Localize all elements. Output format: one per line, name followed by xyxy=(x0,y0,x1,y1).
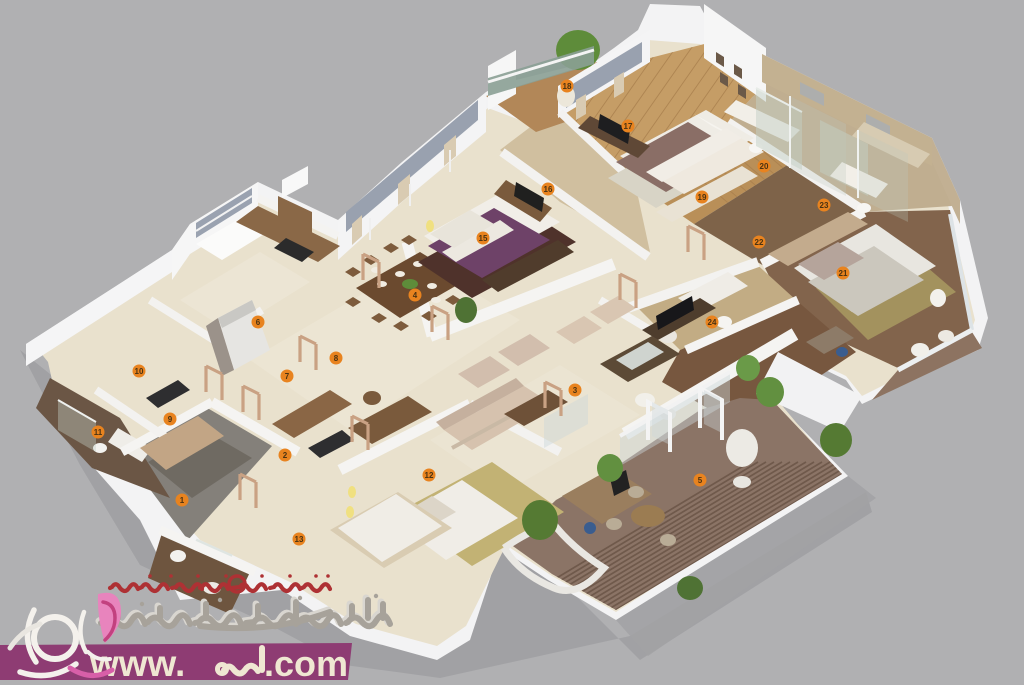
svg-text:12: 12 xyxy=(425,471,434,480)
svg-text:10: 10 xyxy=(135,367,144,376)
svg-text:15: 15 xyxy=(479,234,488,243)
svg-text:16: 16 xyxy=(544,185,553,194)
svg-text:.com: .com xyxy=(264,643,348,680)
svg-text:18: 18 xyxy=(563,82,572,91)
svg-text:11: 11 xyxy=(94,428,103,437)
svg-text:9: 9 xyxy=(168,415,173,424)
svg-text:1: 1 xyxy=(180,496,185,505)
svg-text:22: 22 xyxy=(755,238,764,247)
svg-text:17: 17 xyxy=(624,122,633,131)
svg-text:13: 13 xyxy=(295,535,304,544)
svg-text:7: 7 xyxy=(285,372,290,381)
svg-text:2: 2 xyxy=(283,451,288,460)
svg-text:20: 20 xyxy=(760,162,769,171)
svg-text:19: 19 xyxy=(698,193,707,202)
svg-text:4: 4 xyxy=(413,291,418,300)
svg-text:23: 23 xyxy=(820,201,829,210)
svg-text:5: 5 xyxy=(698,476,703,485)
svg-text:21: 21 xyxy=(839,269,848,278)
svg-text:3: 3 xyxy=(573,386,578,395)
svg-text:24: 24 xyxy=(708,318,717,327)
svg-text:6: 6 xyxy=(256,318,261,327)
svg-text:8: 8 xyxy=(334,354,339,363)
